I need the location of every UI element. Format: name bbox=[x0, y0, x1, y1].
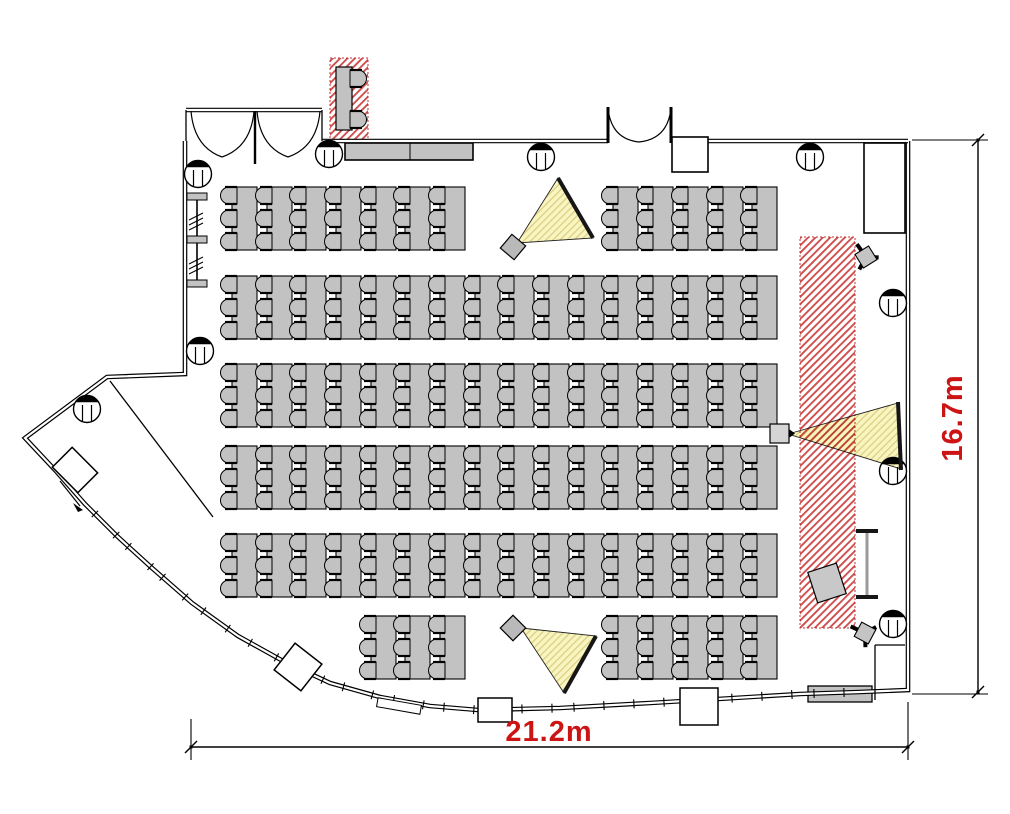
chair bbox=[498, 557, 515, 574]
chair bbox=[602, 469, 619, 486]
chair bbox=[672, 446, 689, 463]
chair bbox=[707, 534, 724, 551]
chair bbox=[741, 580, 758, 597]
camera-body bbox=[854, 622, 876, 644]
table-with-chairs bbox=[602, 276, 639, 339]
chair bbox=[429, 233, 446, 250]
chair bbox=[429, 446, 446, 463]
table-with-chairs bbox=[707, 534, 744, 597]
chair bbox=[394, 322, 411, 339]
chair bbox=[290, 187, 307, 204]
chair bbox=[256, 210, 272, 227]
chair bbox=[221, 364, 238, 381]
chair bbox=[498, 276, 515, 293]
chair bbox=[464, 557, 481, 574]
table-with-chairs bbox=[429, 446, 466, 509]
vestibule-box bbox=[680, 688, 718, 725]
chair bbox=[221, 322, 238, 339]
table-with-chairs bbox=[568, 276, 605, 339]
table-with-chairs bbox=[637, 276, 674, 339]
mullion-tick bbox=[792, 690, 793, 699]
chair bbox=[498, 534, 515, 551]
table-with-chairs bbox=[602, 616, 639, 679]
chair bbox=[533, 446, 550, 463]
chair bbox=[290, 364, 307, 381]
chair bbox=[325, 187, 342, 204]
table-with-chairs bbox=[221, 364, 258, 427]
chair bbox=[707, 580, 724, 597]
chair bbox=[637, 580, 654, 597]
chair bbox=[533, 276, 550, 293]
chair bbox=[498, 492, 515, 509]
column-icon bbox=[74, 395, 101, 422]
chair bbox=[256, 322, 272, 339]
chair bbox=[637, 662, 654, 679]
table-with-chairs bbox=[394, 276, 431, 339]
chair bbox=[741, 639, 758, 656]
chair bbox=[741, 387, 758, 404]
table-with-chairs bbox=[394, 446, 431, 509]
chair bbox=[221, 492, 238, 509]
chair bbox=[290, 387, 307, 404]
chair bbox=[325, 492, 342, 509]
chair bbox=[602, 322, 619, 339]
table-with-chairs bbox=[672, 616, 709, 679]
bay-pier-box bbox=[52, 447, 97, 492]
chair bbox=[707, 469, 724, 486]
chair bbox=[602, 534, 619, 551]
table-with-chairs bbox=[290, 446, 327, 509]
table-with-chairs bbox=[256, 446, 292, 509]
chair bbox=[256, 557, 272, 574]
chair bbox=[290, 534, 307, 551]
chair bbox=[741, 662, 758, 679]
chair bbox=[256, 299, 272, 316]
table-with-chairs bbox=[602, 364, 639, 427]
chair bbox=[290, 299, 307, 316]
table-with-chairs bbox=[672, 276, 709, 339]
chair bbox=[429, 299, 446, 316]
chair bbox=[360, 187, 377, 204]
chair bbox=[464, 322, 481, 339]
chair bbox=[637, 322, 654, 339]
chair bbox=[707, 639, 724, 656]
chair bbox=[256, 387, 272, 404]
door-swing-arc bbox=[191, 111, 222, 157]
chair bbox=[394, 639, 411, 656]
projector-beam bbox=[517, 178, 593, 243]
chair bbox=[602, 364, 619, 381]
chair bbox=[360, 446, 377, 463]
projector-lens bbox=[789, 429, 795, 438]
chair bbox=[290, 210, 307, 227]
chair bbox=[290, 276, 307, 293]
chair bbox=[360, 233, 377, 250]
chair bbox=[325, 387, 342, 404]
table-with-chairs bbox=[290, 187, 327, 250]
chair bbox=[360, 410, 377, 427]
mullion-tick bbox=[444, 703, 445, 712]
table-with-chairs bbox=[221, 446, 258, 509]
chair bbox=[394, 233, 411, 250]
chair bbox=[672, 616, 689, 633]
chair bbox=[707, 233, 724, 250]
floor-plan-drawing: 21.2m 16.7m bbox=[0, 0, 1010, 814]
chair bbox=[568, 364, 585, 381]
chair bbox=[533, 299, 550, 316]
chair bbox=[429, 492, 446, 509]
column-fill-arc bbox=[529, 143, 552, 150]
chair bbox=[741, 210, 758, 227]
column-icon bbox=[880, 289, 907, 316]
chair bbox=[498, 410, 515, 427]
table-with-chairs bbox=[498, 534, 535, 597]
table-with-chairs bbox=[741, 446, 778, 509]
chair bbox=[464, 469, 481, 486]
chair bbox=[672, 299, 689, 316]
column-icon bbox=[185, 160, 212, 187]
chair bbox=[360, 276, 377, 293]
chair bbox=[256, 364, 272, 381]
chair bbox=[394, 446, 411, 463]
chair bbox=[221, 557, 238, 574]
table-with-chairs bbox=[672, 187, 709, 250]
chair bbox=[637, 299, 654, 316]
column-fill-arc bbox=[881, 610, 904, 617]
table-with-chairs bbox=[533, 276, 570, 339]
mullion-tick bbox=[732, 694, 733, 703]
chair bbox=[394, 410, 411, 427]
chair bbox=[464, 492, 481, 509]
chair bbox=[741, 557, 758, 574]
table-with-chairs bbox=[637, 187, 674, 250]
chair bbox=[707, 410, 724, 427]
door-swing-arc bbox=[288, 111, 320, 157]
chair bbox=[394, 616, 411, 633]
table-with-chairs bbox=[221, 276, 258, 339]
chair bbox=[325, 364, 342, 381]
column-fill-arc bbox=[798, 143, 821, 150]
chair bbox=[602, 446, 619, 463]
chair bbox=[498, 299, 515, 316]
chair bbox=[707, 557, 724, 574]
chair bbox=[741, 276, 758, 293]
door-swing-arc bbox=[222, 111, 254, 157]
chair bbox=[498, 580, 515, 597]
chair bbox=[707, 276, 724, 293]
chair bbox=[637, 364, 654, 381]
chair bbox=[637, 557, 654, 574]
dim-tick bbox=[190, 746, 193, 749]
chair bbox=[429, 276, 446, 293]
table-with-chairs bbox=[394, 616, 431, 679]
table-with-chairs bbox=[637, 616, 674, 679]
chair bbox=[360, 534, 377, 551]
chair bbox=[290, 410, 307, 427]
chair bbox=[464, 299, 481, 316]
table-with-chairs bbox=[498, 276, 535, 339]
chair bbox=[290, 492, 307, 509]
chair bbox=[741, 469, 758, 486]
mullion-tick bbox=[762, 692, 763, 701]
chair bbox=[498, 469, 515, 486]
door-swing-arc bbox=[639, 108, 671, 142]
chair bbox=[221, 276, 238, 293]
chair bbox=[741, 187, 758, 204]
chair bbox=[672, 233, 689, 250]
chair bbox=[394, 187, 411, 204]
chair bbox=[464, 410, 481, 427]
chair bbox=[360, 492, 377, 509]
chair bbox=[256, 469, 272, 486]
chair bbox=[637, 639, 654, 656]
chair bbox=[672, 469, 689, 486]
table-with-chairs bbox=[429, 364, 466, 427]
chair bbox=[325, 299, 342, 316]
chair bbox=[290, 580, 307, 597]
table-with-chairs bbox=[707, 446, 744, 509]
chair bbox=[221, 534, 238, 551]
chair bbox=[464, 276, 481, 293]
whiteboard-cap bbox=[856, 529, 878, 533]
table-with-chairs bbox=[394, 187, 431, 250]
table-with-chairs bbox=[707, 616, 744, 679]
coat-rack-bar bbox=[187, 193, 207, 200]
chair bbox=[637, 387, 654, 404]
table-with-chairs bbox=[464, 446, 501, 509]
chair bbox=[707, 210, 724, 227]
chair bbox=[429, 639, 446, 656]
height-dimension-label: 16.7m bbox=[937, 374, 969, 461]
chair bbox=[741, 233, 758, 250]
chair bbox=[325, 233, 342, 250]
chair bbox=[464, 446, 481, 463]
chair bbox=[256, 580, 272, 597]
chair bbox=[672, 276, 689, 293]
width-dimension-label: 21.2m bbox=[505, 716, 592, 748]
table-with-chairs bbox=[256, 187, 292, 250]
chair bbox=[256, 233, 272, 250]
chair bbox=[741, 534, 758, 551]
chair bbox=[256, 446, 272, 463]
chair bbox=[429, 187, 446, 204]
table-with-chairs bbox=[394, 364, 431, 427]
chair bbox=[221, 446, 238, 463]
table-with-chairs bbox=[741, 187, 778, 250]
chair bbox=[464, 580, 481, 597]
table-with-chairs bbox=[290, 276, 327, 339]
chair bbox=[325, 322, 342, 339]
chair bbox=[325, 210, 342, 227]
chair bbox=[394, 364, 411, 381]
chair bbox=[741, 446, 758, 463]
chair bbox=[221, 299, 238, 316]
chair bbox=[429, 322, 446, 339]
table-with-chairs bbox=[672, 534, 709, 597]
chair bbox=[707, 662, 724, 679]
chair bbox=[256, 187, 272, 204]
chair bbox=[637, 233, 654, 250]
coat-rack-bar bbox=[187, 280, 207, 287]
chair bbox=[568, 322, 585, 339]
table-with-chairs bbox=[707, 364, 744, 427]
column-icon bbox=[880, 610, 907, 637]
table-with-chairs bbox=[290, 364, 327, 427]
table-with-chairs bbox=[394, 534, 431, 597]
entrance-double-doors bbox=[191, 111, 320, 164]
chair bbox=[707, 299, 724, 316]
chair bbox=[672, 557, 689, 574]
chair bbox=[602, 187, 619, 204]
table-with-chairs bbox=[568, 364, 605, 427]
chair bbox=[637, 492, 654, 509]
table-with-chairs bbox=[602, 534, 639, 597]
chair bbox=[707, 322, 724, 339]
table-with-chairs bbox=[741, 534, 778, 597]
column-icon bbox=[316, 140, 343, 167]
chair bbox=[602, 410, 619, 427]
chair bbox=[256, 534, 272, 551]
door-swing-arc bbox=[608, 108, 639, 142]
chair bbox=[360, 639, 377, 656]
column-fill-arc bbox=[881, 289, 904, 296]
chair bbox=[602, 299, 619, 316]
table-with-chairs bbox=[672, 364, 709, 427]
chair bbox=[602, 580, 619, 597]
chair bbox=[360, 210, 377, 227]
table-with-chairs bbox=[325, 446, 362, 509]
chair bbox=[429, 410, 446, 427]
table-with-chairs bbox=[360, 276, 397, 339]
table-with-chairs bbox=[498, 446, 535, 509]
table-with-chairs bbox=[464, 364, 501, 427]
chair bbox=[394, 387, 411, 404]
chair bbox=[498, 322, 515, 339]
chair bbox=[464, 387, 481, 404]
chair bbox=[394, 492, 411, 509]
chair bbox=[325, 469, 342, 486]
chair bbox=[637, 187, 654, 204]
chair bbox=[533, 580, 550, 597]
chair bbox=[707, 446, 724, 463]
chair bbox=[221, 410, 238, 427]
chair bbox=[741, 616, 758, 633]
chair bbox=[672, 387, 689, 404]
chair bbox=[429, 469, 446, 486]
table-with-chairs bbox=[602, 446, 639, 509]
chair bbox=[672, 534, 689, 551]
chair bbox=[741, 410, 758, 427]
chair bbox=[221, 233, 238, 250]
chair bbox=[256, 276, 272, 293]
chair bbox=[637, 446, 654, 463]
chair bbox=[602, 387, 619, 404]
table-with-chairs bbox=[429, 616, 466, 679]
floor-plan-page: 21.2m 16.7m bbox=[0, 0, 1010, 814]
table-with-chairs bbox=[360, 534, 397, 597]
curve-pier-box bbox=[274, 643, 322, 691]
table-with-chairs bbox=[325, 276, 362, 339]
chair bbox=[637, 276, 654, 293]
mullion-tick bbox=[423, 700, 425, 709]
chair bbox=[602, 639, 619, 656]
mullion-tick bbox=[473, 705, 474, 714]
chair bbox=[325, 534, 342, 551]
chair bbox=[741, 322, 758, 339]
chair bbox=[741, 364, 758, 381]
chair bbox=[394, 276, 411, 293]
side-double-door bbox=[608, 107, 671, 143]
chair bbox=[221, 187, 238, 204]
chair bbox=[464, 534, 481, 551]
projector-icon bbox=[770, 424, 789, 443]
table-with-chairs bbox=[602, 187, 639, 250]
table-with-chairs bbox=[429, 187, 466, 250]
chair bbox=[568, 557, 585, 574]
chair bbox=[394, 580, 411, 597]
table-with-chairs bbox=[707, 187, 744, 250]
table-with-chairs bbox=[637, 534, 674, 597]
chair bbox=[429, 580, 446, 597]
chair bbox=[637, 410, 654, 427]
chair bbox=[325, 557, 342, 574]
chair bbox=[602, 276, 619, 293]
table-with-chairs bbox=[429, 276, 466, 339]
mullion-tick bbox=[664, 698, 665, 707]
table-with-chairs bbox=[533, 534, 570, 597]
table-with-chairs bbox=[360, 187, 397, 250]
chair bbox=[568, 492, 585, 509]
chair bbox=[568, 469, 585, 486]
chair bbox=[429, 210, 446, 227]
chair bbox=[741, 492, 758, 509]
table-with-chairs bbox=[568, 534, 605, 597]
table-with-chairs bbox=[741, 616, 778, 679]
chair bbox=[429, 534, 446, 551]
chair bbox=[568, 387, 585, 404]
column-icon bbox=[187, 337, 214, 364]
chair bbox=[637, 469, 654, 486]
chair bbox=[394, 299, 411, 316]
chair bbox=[290, 557, 307, 574]
chair bbox=[533, 322, 550, 339]
chair bbox=[672, 322, 689, 339]
dim-tick bbox=[977, 691, 980, 694]
column-fill-arc bbox=[186, 160, 209, 167]
chair bbox=[360, 580, 377, 597]
chair bbox=[325, 446, 342, 463]
table-with-chairs bbox=[568, 446, 605, 509]
chair bbox=[256, 410, 272, 427]
chair bbox=[533, 364, 550, 381]
table-with-chairs bbox=[637, 446, 674, 509]
chair bbox=[637, 534, 654, 551]
chair bbox=[394, 557, 411, 574]
chair bbox=[360, 364, 377, 381]
table-with-chairs bbox=[533, 364, 570, 427]
chair bbox=[498, 387, 515, 404]
dim-tick bbox=[907, 746, 910, 749]
chair bbox=[325, 410, 342, 427]
coat-rack-bar bbox=[187, 236, 207, 243]
chair bbox=[464, 364, 481, 381]
table-with-chairs bbox=[637, 364, 674, 427]
chair bbox=[290, 322, 307, 339]
table-with-chairs bbox=[325, 534, 362, 597]
chair bbox=[533, 469, 550, 486]
chair bbox=[290, 233, 307, 250]
chair bbox=[429, 616, 446, 633]
